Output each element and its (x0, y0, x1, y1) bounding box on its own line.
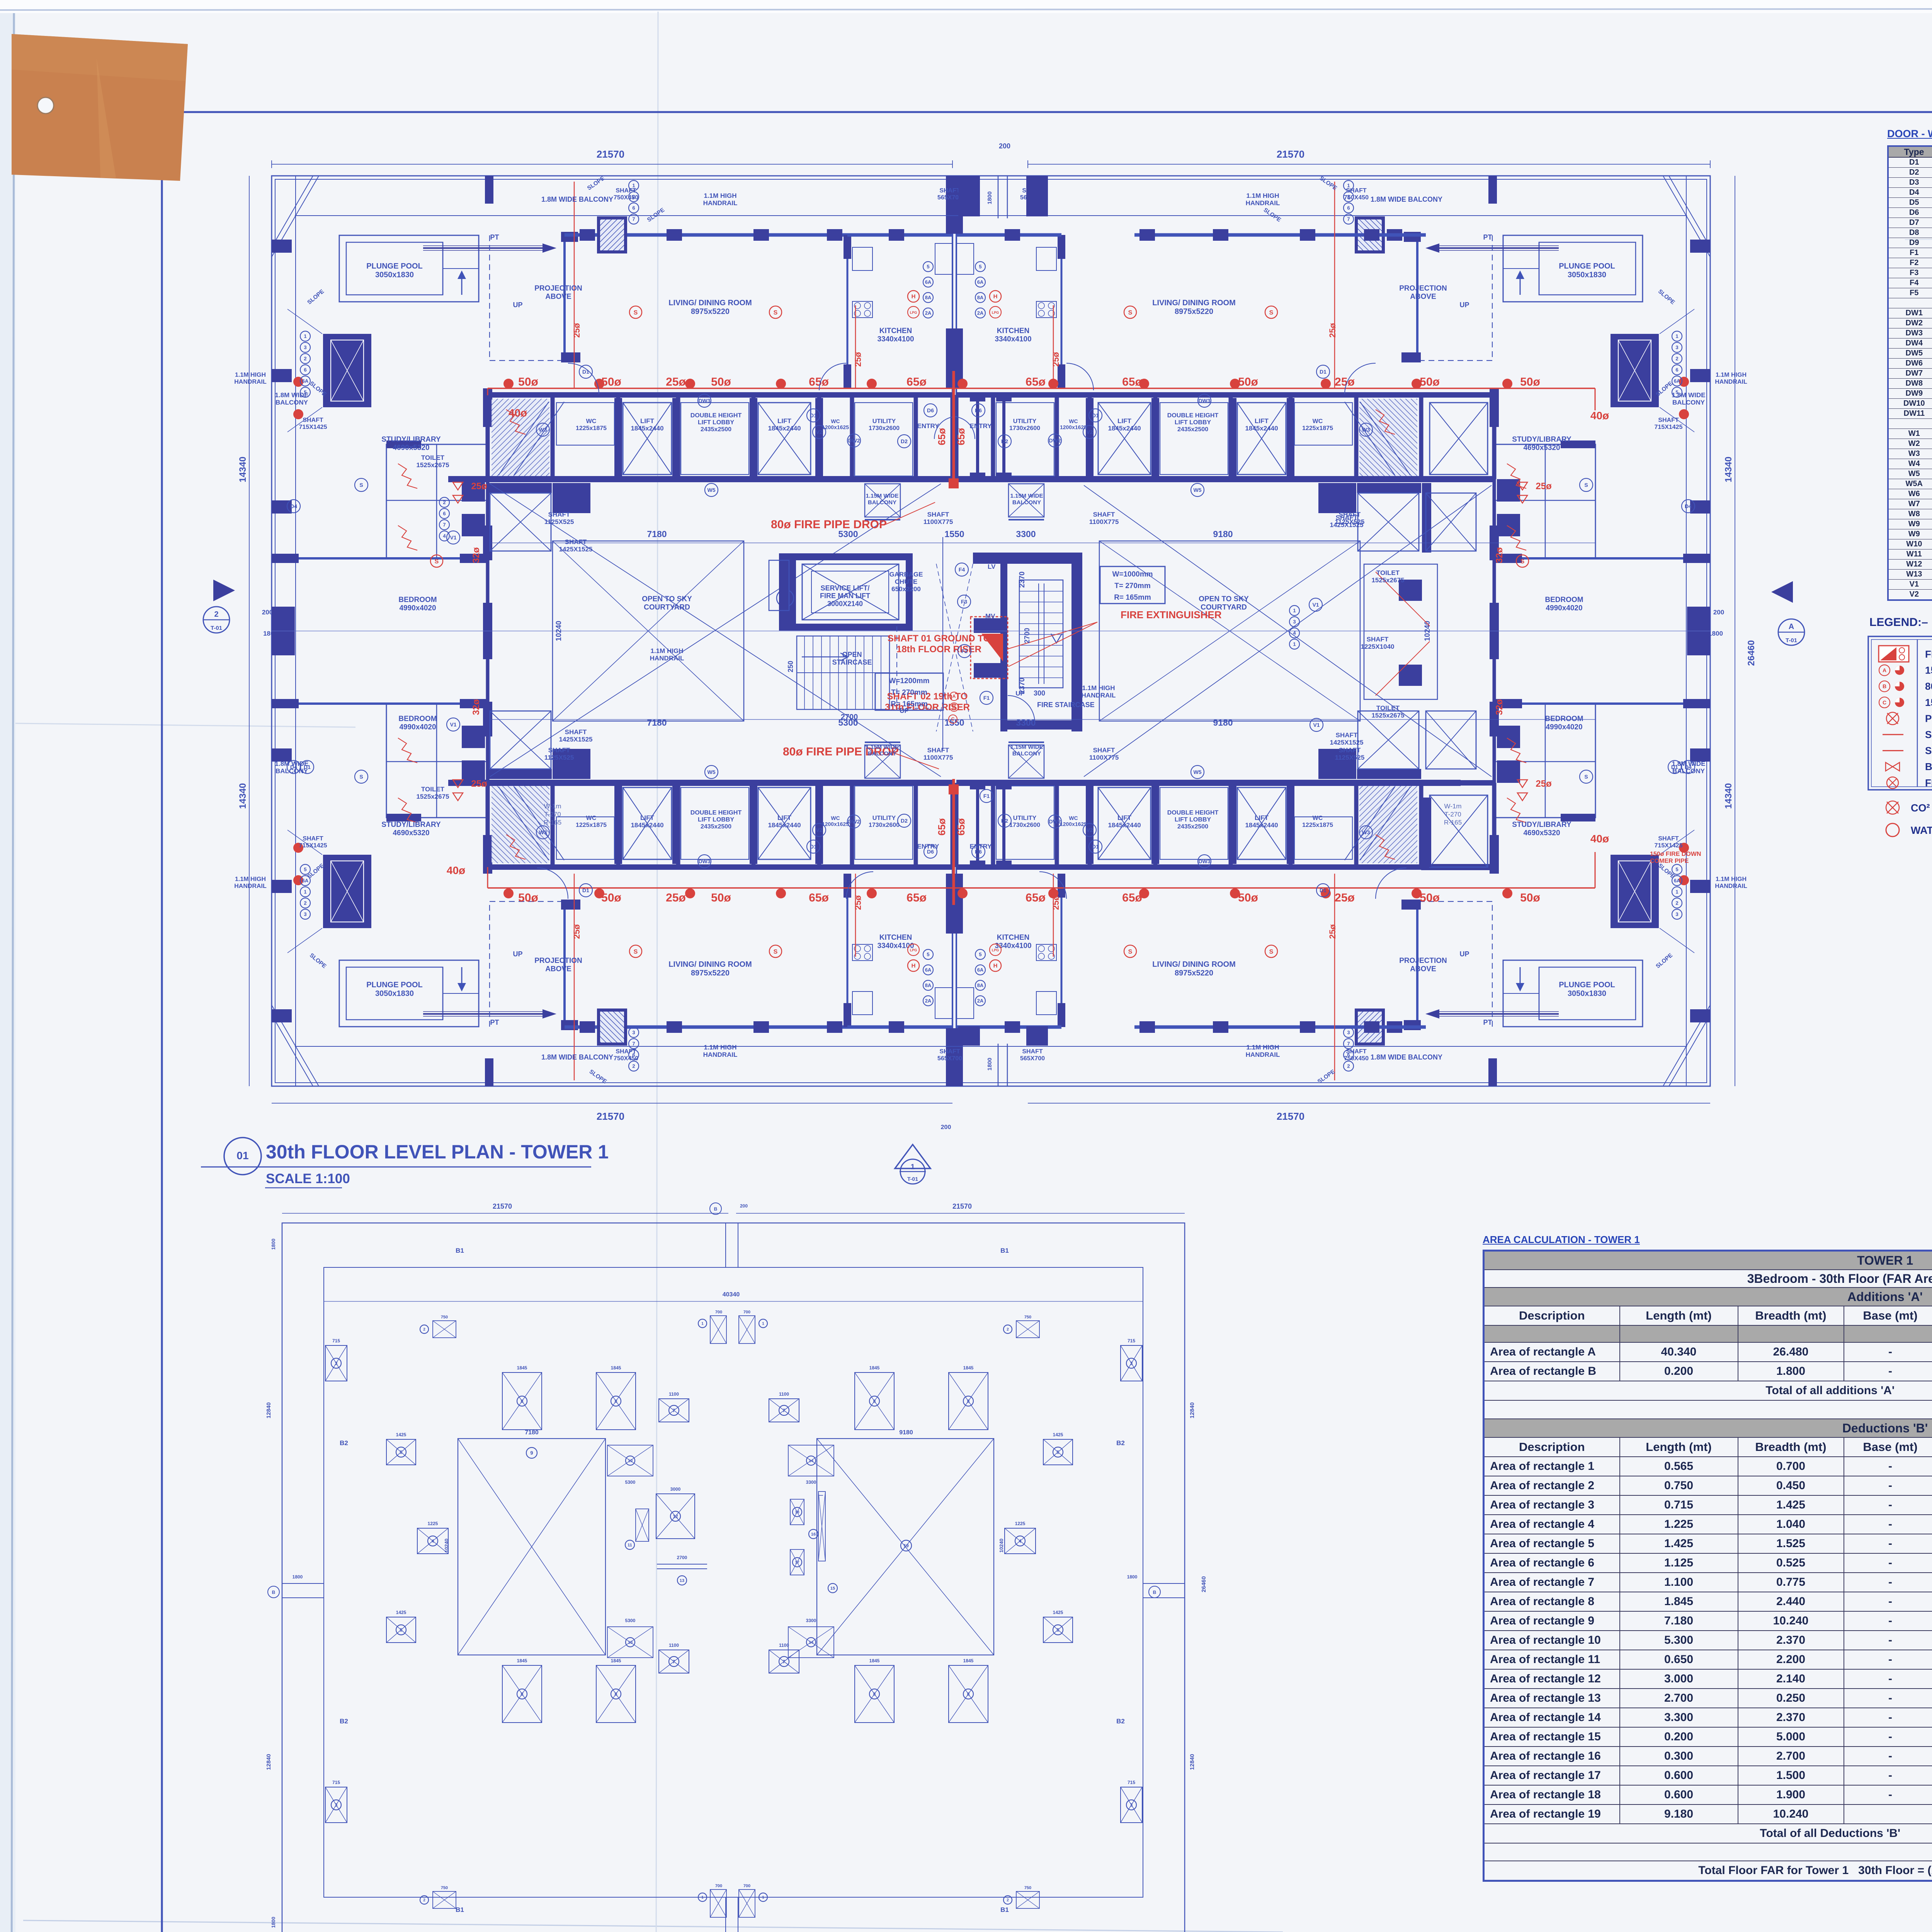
svg-text:1845: 1845 (611, 1365, 621, 1371)
svg-text:PT: PT (490, 1019, 499, 1026)
svg-text:F3: F3 (961, 599, 968, 605)
svg-text:6: 6 (632, 205, 635, 211)
svg-text:SCALE 1:100: SCALE 1:100 (266, 1171, 350, 1186)
svg-text:1.8M WIDE BALCONY: 1.8M WIDE BALCONY (541, 196, 613, 203)
svg-text:KITCHEN: KITCHEN (997, 934, 1029, 942)
svg-text:25ø: 25ø (666, 891, 686, 904)
svg-text:25ø: 25ø (471, 779, 487, 789)
svg-text:40340: 40340 (723, 1291, 740, 1298)
svg-text:50ø: 50ø (711, 376, 731, 388)
svg-text:DW3: DW3 (698, 858, 710, 864)
svg-text:B: B (272, 1590, 276, 1595)
svg-text:LIVING/ DINING ROOM: LIVING/ DINING ROOM (668, 960, 752, 969)
svg-text:3300: 3300 (806, 1618, 816, 1623)
svg-text:BALCONY: BALCONY (868, 499, 896, 506)
svg-text:PLUNGE POOL: PLUNGE POOL (1559, 981, 1615, 989)
svg-text:C: C (1883, 699, 1886, 706)
svg-text:S: S (1520, 558, 1525, 565)
svg-text:6: 6 (443, 511, 446, 517)
svg-text:6A: 6A (925, 967, 932, 973)
svg-text:TOILET: TOILET (1376, 569, 1400, 577)
svg-text:UP: UP (1459, 301, 1469, 309)
svg-text:25ø: 25ø (1335, 376, 1355, 388)
svg-text:5: 5 (1057, 1449, 1060, 1455)
svg-text:BEDROOM: BEDROOM (1545, 596, 1583, 604)
svg-text:DOUBLE HEIGHT: DOUBLE HEIGHT (1167, 412, 1219, 419)
svg-text:50ø: 50ø (1420, 376, 1440, 388)
svg-text:LIVING/ DINING ROOM: LIVING/ DINING ROOM (1152, 960, 1236, 969)
svg-text:5: 5 (1057, 1627, 1060, 1633)
svg-text:1225X1040: 1225X1040 (1361, 643, 1395, 650)
svg-text:UTILITY: UTILITY (1013, 815, 1037, 821)
svg-text:6: 6 (1347, 1052, 1350, 1058)
svg-text:1200x1625: 1200x1625 (1060, 821, 1087, 827)
svg-text:WC: WC (831, 418, 840, 424)
svg-text:SHAFT: SHAFT (927, 511, 949, 518)
svg-text:3: 3 (1130, 1361, 1133, 1366)
svg-text:150ø FIRE DOWN: 150ø FIRE DOWN (1650, 851, 1701, 857)
svg-text:200: 200 (1713, 609, 1724, 616)
svg-text:WC: WC (586, 418, 597, 425)
svg-text:2: 2 (632, 1063, 635, 1069)
svg-text:W3: W3 (539, 829, 547, 835)
svg-text:V1: V1 (1313, 722, 1320, 728)
svg-text:LIFT: LIFT (1255, 417, 1269, 425)
svg-text:1845: 1845 (869, 1658, 880, 1663)
svg-text:565X700: 565X700 (937, 1055, 962, 1062)
svg-text:UP: UP (1459, 950, 1469, 958)
svg-text:1125X525: 1125X525 (544, 518, 574, 526)
svg-text:26460: 26460 (1201, 1576, 1207, 1592)
svg-text:PT: PT (490, 233, 499, 241)
svg-text:W=1200mm: W=1200mm (889, 677, 929, 685)
svg-text:5: 5 (1675, 867, 1678, 872)
svg-text:50ø: 50ø (518, 891, 538, 904)
svg-text:01: 01 (236, 1150, 248, 1162)
svg-text:8: 8 (967, 1691, 970, 1697)
svg-text:8A: 8A (977, 983, 984, 988)
svg-text:UTILITY: UTILITY (872, 418, 896, 425)
svg-text:8: 8 (873, 1691, 876, 1697)
svg-text:2A: 2A (977, 310, 984, 316)
svg-text:5: 5 (400, 1449, 403, 1455)
svg-text:1800: 1800 (270, 1239, 276, 1250)
svg-text:21570: 21570 (1277, 148, 1304, 160)
svg-text:LIFT LOBBY: LIFT LOBBY (1175, 419, 1211, 426)
svg-text:S: S (774, 949, 778, 955)
svg-text:21570: 21570 (952, 1202, 972, 1210)
svg-text:R-165: R-165 (1444, 819, 1462, 826)
svg-text:6A: 6A (977, 967, 984, 973)
svg-text:80ø DRAIN PIPE: 80ø DRAIN PIPE (1925, 680, 1932, 692)
svg-text:565X700: 565X700 (1020, 1055, 1045, 1062)
svg-text:D1: D1 (1320, 369, 1327, 375)
svg-text:7: 7 (783, 1659, 786, 1664)
svg-text:V1: V1 (450, 721, 456, 728)
svg-text:5: 5 (304, 867, 306, 872)
svg-text:D1: D1 (582, 369, 589, 375)
svg-text:W3: W3 (539, 427, 547, 433)
svg-text:6: 6 (632, 1052, 635, 1058)
svg-text:B: B (952, 704, 956, 710)
svg-text:65ø: 65ø (906, 891, 927, 904)
svg-text:8A: 8A (925, 983, 932, 988)
svg-text:V2: V2 (1086, 827, 1093, 833)
svg-text:D1: D1 (1092, 412, 1099, 418)
svg-text:1730x2600: 1730x2600 (869, 425, 900, 432)
svg-text:2A: 2A (977, 998, 984, 1004)
svg-text:DW2: DW2 (1049, 818, 1061, 825)
svg-text:D4: D4 (1685, 503, 1692, 509)
svg-text:1: 1 (1293, 641, 1296, 647)
svg-text:7: 7 (673, 1408, 675, 1413)
svg-text:3000: 3000 (670, 1486, 681, 1492)
svg-text:HANDRAIL: HANDRAIL (234, 883, 267, 889)
svg-text:UP: UP (513, 301, 522, 309)
svg-text:MV: MV (985, 612, 995, 620)
svg-text:3: 3 (304, 912, 306, 917)
svg-text:32ø: 32ø (471, 699, 481, 715)
svg-text:S: S (435, 558, 439, 565)
svg-text:715: 715 (332, 1338, 340, 1344)
svg-text:715: 715 (1128, 1780, 1135, 1785)
svg-text:65ø: 65ø (1122, 376, 1142, 388)
svg-text:80ø FIRE PIPE DROP: 80ø FIRE PIPE DROP (771, 518, 887, 531)
svg-text:1100X775: 1100X775 (923, 754, 953, 761)
svg-text:R= 165mm: R= 165mm (891, 700, 928, 708)
svg-text:H: H (993, 963, 998, 969)
svg-text:DW3: DW3 (698, 398, 710, 404)
svg-text:1425X1525: 1425X1525 (559, 736, 593, 743)
svg-text:SHAFT: SHAFT (548, 747, 570, 754)
svg-text:W-1m: W-1m (1444, 803, 1461, 810)
svg-text:8975x5220: 8975x5220 (1175, 307, 1213, 316)
svg-text:12840: 12840 (265, 1754, 272, 1770)
svg-text:LPG: LPG (992, 311, 999, 315)
svg-text:1100: 1100 (779, 1391, 789, 1397)
svg-text:2: 2 (304, 900, 306, 906)
svg-text:3050x1830: 3050x1830 (375, 989, 414, 998)
svg-text:TOILET: TOILET (421, 454, 445, 461)
svg-text:4690x5320: 4690x5320 (1523, 829, 1560, 837)
svg-text:2700: 2700 (1023, 628, 1031, 643)
svg-text:8A: 8A (925, 295, 932, 301)
svg-text:65ø: 65ø (906, 376, 927, 388)
svg-text:32ø: 32ø (471, 547, 481, 563)
svg-text:C: C (951, 716, 955, 722)
svg-text:3: 3 (1293, 619, 1296, 625)
svg-text:H: H (993, 293, 998, 300)
svg-text:1845x2440: 1845x2440 (1108, 821, 1141, 829)
svg-text:25ø: 25ø (1328, 323, 1337, 337)
svg-text:1845x2440: 1845x2440 (631, 425, 663, 432)
svg-text:32ø: 32ø (1494, 699, 1505, 715)
svg-text:D1: D1 (810, 412, 817, 418)
svg-text:7: 7 (783, 1408, 786, 1413)
svg-text:B2: B2 (340, 1439, 348, 1447)
svg-text:7180: 7180 (647, 529, 667, 539)
svg-text:1.1M HIGH: 1.1M HIGH (1082, 684, 1115, 692)
svg-text:50ø: 50ø (1520, 891, 1540, 904)
svg-text:10: 10 (628, 1640, 633, 1645)
svg-text:1200x1625: 1200x1625 (822, 821, 849, 827)
svg-text:65ø: 65ø (955, 428, 967, 445)
svg-text:S: S (1269, 310, 1274, 316)
svg-text:B1: B1 (456, 1247, 464, 1254)
svg-text:25ø: 25ø (853, 352, 863, 366)
svg-text:LIFT: LIFT (1117, 417, 1131, 425)
svg-text:3: 3 (335, 1361, 338, 1366)
svg-text:700: 700 (715, 1310, 722, 1315)
svg-text:5300: 5300 (625, 1480, 636, 1485)
svg-text:250: 250 (787, 661, 794, 672)
svg-text:1845: 1845 (611, 1658, 621, 1663)
svg-text:1425: 1425 (396, 1610, 406, 1615)
svg-text:1.1M HIGH: 1.1M HIGH (650, 647, 683, 655)
svg-text:GARBAGE: GARBAGE (889, 571, 923, 578)
svg-text:D6: D6 (927, 407, 934, 413)
svg-text:4990x4020: 4990x4020 (399, 604, 436, 612)
svg-text:S: S (359, 774, 363, 780)
svg-text:LEGEND:–: LEGEND:– (1869, 616, 1928, 629)
svg-text:1.1M HIGH: 1.1M HIGH (1716, 876, 1747, 883)
svg-text:H: H (912, 963, 916, 969)
svg-text:750: 750 (1024, 1886, 1031, 1890)
svg-text:1550: 1550 (944, 529, 964, 539)
svg-text:D1: D1 (304, 764, 311, 770)
svg-text:5300: 5300 (625, 1618, 636, 1623)
svg-text:LIFT LOBBY: LIFT LOBBY (698, 419, 735, 426)
svg-text:2: 2 (214, 610, 218, 619)
svg-text:8: 8 (967, 1398, 970, 1404)
svg-text:2A: 2A (925, 310, 932, 316)
svg-text:12840: 12840 (1189, 1754, 1196, 1770)
svg-text:1225x1875: 1225x1875 (1302, 822, 1333, 828)
svg-text:1425: 1425 (396, 1432, 406, 1437)
svg-text:32ø: 32ø (1494, 547, 1505, 563)
svg-text:SHAFT: SHAFT (1339, 747, 1361, 754)
svg-text:50ø: 50ø (1520, 376, 1540, 388)
svg-text:26460: 26460 (1746, 640, 1757, 666)
svg-text:14340: 14340 (238, 457, 248, 483)
svg-text:1.15M WIDE: 1.15M WIDE (866, 744, 898, 750)
svg-text:1: 1 (1347, 183, 1350, 189)
svg-text:V2: V2 (816, 827, 822, 833)
svg-text:S: S (359, 482, 363, 488)
svg-text:ABOVE: ABOVE (545, 293, 571, 301)
svg-text:21570: 21570 (1277, 1111, 1304, 1122)
svg-text:WC: WC (1069, 815, 1078, 821)
svg-text:SHAFT: SHAFT (548, 511, 570, 518)
svg-text:S: S (774, 310, 778, 316)
svg-text:5: 5 (927, 264, 929, 270)
svg-text:14340: 14340 (238, 783, 248, 809)
svg-text:14340: 14340 (1723, 457, 1734, 483)
svg-text:W=1000mm: W=1000mm (1112, 570, 1153, 578)
svg-text:1.1M HIGH: 1.1M HIGH (704, 192, 736, 199)
svg-text:1100X775: 1100X775 (1089, 754, 1119, 761)
svg-text:65ø: 65ø (809, 891, 829, 904)
svg-text:12840: 12840 (1189, 1402, 1196, 1418)
svg-text:16: 16 (811, 1532, 816, 1537)
svg-text:10: 10 (628, 1459, 633, 1463)
svg-text:WC: WC (831, 815, 840, 821)
svg-text:1525x2675: 1525x2675 (1371, 712, 1404, 719)
svg-text:25ø: 25ø (1051, 352, 1061, 366)
svg-text:4: 4 (1019, 1538, 1022, 1544)
svg-text:65ø: 65ø (1026, 376, 1046, 388)
svg-text:3340x4100: 3340x4100 (877, 942, 914, 950)
svg-text:3050x1830: 3050x1830 (375, 270, 414, 279)
svg-text:5: 5 (304, 389, 306, 395)
svg-text:S: S (1128, 949, 1133, 955)
svg-text:F2: F2 (961, 648, 968, 654)
svg-text:HANDRAIL: HANDRAIL (703, 199, 738, 207)
svg-text:SHAFT: SHAFT (565, 728, 587, 736)
svg-text:7: 7 (632, 1041, 635, 1047)
svg-text:1425: 1425 (1053, 1432, 1063, 1437)
svg-text:25ø: 25ø (1335, 891, 1355, 904)
svg-text:SHAFT: SHAFT (927, 747, 949, 754)
svg-text:UP: UP (513, 950, 522, 958)
svg-text:V2: V2 (816, 429, 822, 435)
svg-text:W5: W5 (1194, 487, 1202, 493)
svg-text:COURTYARD: COURTYARD (1201, 603, 1247, 611)
svg-text:1845: 1845 (869, 1365, 880, 1371)
svg-text:1.15M WIDE: 1.15M WIDE (866, 493, 898, 499)
svg-text:D6: D6 (927, 849, 934, 855)
svg-text:40ø: 40ø (447, 864, 465, 876)
svg-text:PROJECTION: PROJECTION (1399, 957, 1447, 965)
svg-text:2: 2 (1675, 900, 1678, 906)
svg-text:T-270: T-270 (1444, 811, 1461, 818)
svg-text:17: 17 (795, 1561, 799, 1565)
svg-text:OPEN TO SKY: OPEN TO SKY (1199, 595, 1249, 603)
svg-text:50ø: 50ø (1238, 891, 1258, 904)
svg-text:750: 750 (441, 1315, 448, 1320)
svg-text:V2: V2 (1086, 429, 1093, 435)
svg-text:2: 2 (304, 356, 306, 362)
svg-text:BALCONY: BALCONY (1672, 399, 1705, 406)
svg-text:40ø: 40ø (509, 407, 527, 419)
svg-text:1.1M HIGH: 1.1M HIGH (1716, 372, 1747, 378)
svg-text:8: 8 (615, 1691, 617, 1697)
svg-text:4690x5320: 4690x5320 (393, 829, 429, 837)
svg-text:PLUNGE POOL: PLUNGE POOL (366, 981, 423, 989)
svg-text:7: 7 (443, 522, 446, 528)
svg-text:25ø: 25ø (1536, 481, 1552, 492)
svg-text:25ø: 25ø (853, 895, 863, 910)
svg-text:HANDRAIL: HANDRAIL (650, 655, 684, 662)
svg-text:3: 3 (1675, 345, 1678, 350)
svg-text:D1: D1 (810, 844, 817, 850)
svg-text:1100X775: 1100X775 (923, 518, 953, 526)
svg-text:1730x2600: 1730x2600 (1009, 822, 1040, 828)
svg-text:2: 2 (423, 1898, 425, 1903)
svg-text:65ø: 65ø (1122, 891, 1142, 904)
svg-text:1845x2440: 1845x2440 (1108, 425, 1141, 432)
svg-text:H: H (912, 293, 916, 300)
svg-text:WC: WC (586, 815, 597, 821)
svg-text:1225x1875: 1225x1875 (1302, 425, 1333, 432)
svg-text:D4: D4 (290, 764, 297, 770)
svg-text:SHAFT: SHAFT (1658, 417, 1679, 423)
svg-text:1: 1 (632, 183, 635, 189)
svg-text:6A: 6A (925, 279, 932, 285)
svg-text:5: 5 (927, 952, 929, 957)
svg-text:3: 3 (632, 1030, 635, 1036)
svg-text:LIFT: LIFT (640, 417, 654, 425)
svg-text:S: S (1269, 949, 1274, 955)
svg-text:CO² FIRE EXTINGUISHER: CO² FIRE EXTINGUISHER (1911, 802, 1932, 814)
svg-text:A: A (952, 694, 956, 699)
svg-text:S: S (634, 310, 638, 316)
svg-text:4990x4020: 4990x4020 (399, 723, 436, 731)
svg-text:7: 7 (673, 1659, 675, 1664)
svg-text:SHAFT: SHAFT (1336, 514, 1358, 521)
svg-text:40ø: 40ø (1590, 410, 1609, 422)
svg-text:1800: 1800 (1708, 630, 1723, 637)
svg-text:1: 1 (701, 1322, 704, 1326)
svg-text:6: 6 (304, 367, 306, 373)
svg-text:1525x2675: 1525x2675 (416, 793, 449, 800)
svg-text:4990x4020: 4990x4020 (1546, 604, 1582, 612)
svg-text:B2: B2 (1116, 1439, 1125, 1447)
svg-text:3050x1830: 3050x1830 (1568, 270, 1606, 279)
svg-text:2A: 2A (925, 998, 932, 1004)
svg-text:HANDRAIL: HANDRAIL (1082, 692, 1116, 699)
svg-text:1800: 1800 (986, 1058, 993, 1070)
svg-text:2: 2 (1007, 1328, 1009, 1332)
svg-text:1225x1875: 1225x1875 (576, 425, 607, 432)
svg-text:50ø: 50ø (1420, 891, 1440, 904)
svg-text:2700: 2700 (677, 1555, 687, 1560)
svg-text:1425X1525: 1425X1525 (1330, 521, 1364, 529)
svg-text:SHAFT 01 GROUND TO: SHAFT 01 GROUND TO (888, 633, 990, 644)
svg-text:KITCHEN: KITCHEN (997, 327, 1029, 335)
svg-text:B: B (714, 1206, 718, 1212)
svg-text:ABOVE: ABOVE (1410, 965, 1436, 973)
svg-text:SHAFT: SHAFT (303, 417, 323, 423)
svg-text:2435x2500: 2435x2500 (701, 823, 731, 830)
svg-text:1525x2675: 1525x2675 (416, 461, 449, 469)
svg-text:4: 4 (1293, 630, 1296, 636)
svg-text:3050x1830: 3050x1830 (1568, 989, 1606, 998)
svg-text:7: 7 (1347, 1041, 1350, 1047)
svg-text:715X1425: 715X1425 (1655, 842, 1683, 849)
svg-text:SERVICE LIFT/: SERVICE LIFT/ (821, 584, 870, 592)
svg-text:12: 12 (673, 1514, 678, 1519)
svg-text:SHAFT: SHAFT (1658, 835, 1679, 842)
svg-text:25ø: 25ø (1328, 924, 1337, 939)
svg-text:3000X2140: 3000X2140 (827, 600, 863, 607)
svg-text:FIRE MAN LIFT: FIRE MAN LIFT (820, 592, 870, 600)
svg-text:1.8M WIDE BALCONY: 1.8M WIDE BALCONY (1371, 1053, 1442, 1061)
svg-text:SHAFT: SHAFT (565, 538, 587, 546)
svg-text:TOILET: TOILET (1376, 704, 1400, 712)
svg-text:150ø SPRINKLER PIPE: 150ø SPRINKLER PIPE (1925, 697, 1932, 708)
svg-text:14: 14 (809, 1459, 814, 1463)
svg-text:50ø: 50ø (1238, 376, 1258, 388)
svg-text:65ø: 65ø (936, 818, 947, 835)
svg-text:UP: UP (1015, 690, 1025, 697)
svg-text:7: 7 (1347, 216, 1350, 222)
svg-text:9180: 9180 (899, 1429, 913, 1436)
svg-text:1845x2440: 1845x2440 (768, 425, 801, 432)
svg-text:1.15M WIDE: 1.15M WIDE (1010, 744, 1043, 750)
svg-text:WC: WC (1313, 815, 1323, 821)
svg-text:4990x4020: 4990x4020 (1546, 723, 1582, 731)
